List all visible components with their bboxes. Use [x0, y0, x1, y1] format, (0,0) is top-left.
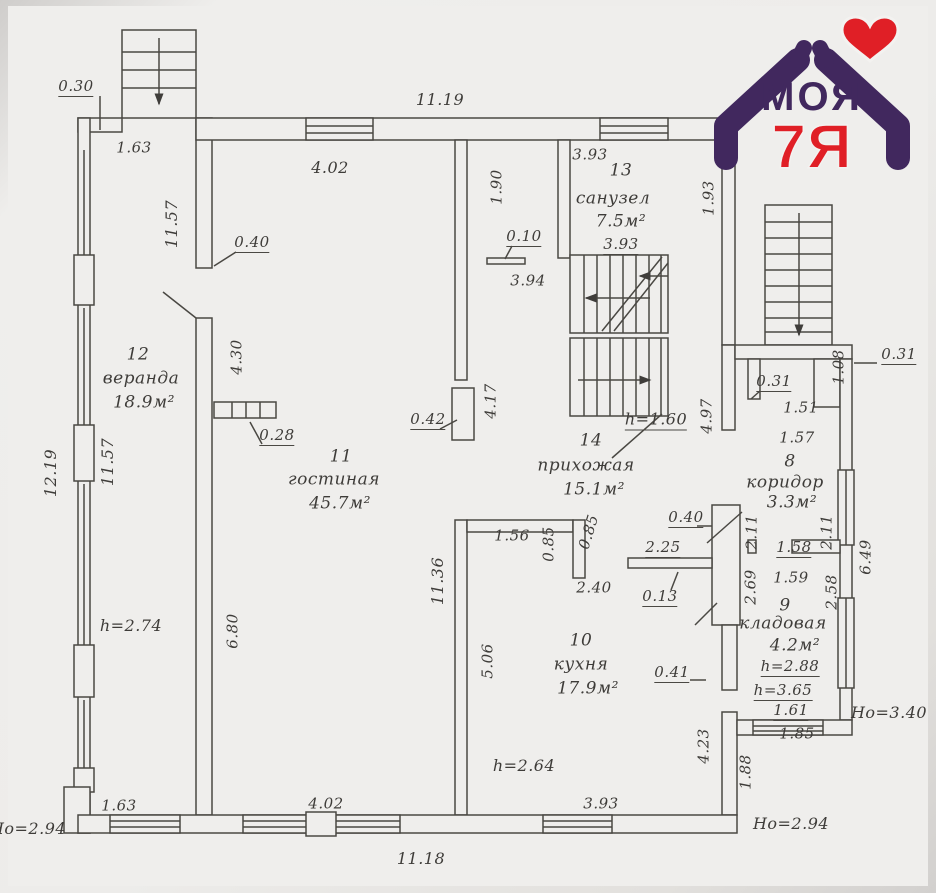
logo-brand: 7Я [771, 113, 852, 182]
dim-ho-3-40: Но=3.40 [851, 705, 927, 721]
dim-h-3-65: h=3.65 [754, 683, 813, 701]
room-number-storage: 9 [779, 598, 790, 615]
room-name-kitchen: кухня [554, 657, 609, 674]
room-number-veranda: 12 [127, 347, 150, 364]
dim-h-2-64: h=2.64 [493, 758, 555, 774]
dim-4-02-top: 4.02 [311, 160, 349, 176]
dim-0-40-left: 0.40 [234, 235, 269, 253]
room-area-hall: 15.1м² [563, 482, 625, 499]
dim-0-85-a: 0.85 [542, 526, 557, 561]
dim-0-30: 0.30 [58, 79, 93, 97]
room-area-kitchen: 17.9м² [557, 681, 619, 698]
dim-11-36: 11.36 [430, 557, 446, 605]
dim-ho-2-94-left: Но=2.94 [0, 821, 66, 837]
dim-1-61: 1.61 [773, 703, 808, 721]
dim-1-59: 1.59 [773, 571, 808, 586]
dim-11-57-top: 11.57 [164, 200, 180, 248]
dim-1-08: 1.08 [832, 349, 847, 384]
dim-1-93: 1.93 [702, 180, 717, 215]
dim-4-30: 4.30 [230, 339, 245, 374]
dim-ho-2-94-right: Но=2.94 [753, 816, 829, 832]
dim-3-93-kitchen: 3.93 [583, 797, 618, 812]
dim-1-85: 1.85 [779, 727, 814, 742]
dim-h-2-74: h=2.74 [100, 618, 162, 634]
room-name-bath: санузел [576, 191, 650, 208]
dim-2-11-left: 2.11 [745, 514, 760, 549]
dim-2-25: 2.25 [645, 540, 680, 558]
room-name-veranda: веранда [103, 371, 180, 388]
dim-4-17: 4.17 [484, 383, 499, 418]
dim-4-97: 4.97 [700, 398, 715, 433]
stairs-top-left [122, 30, 196, 118]
room-number-living: 11 [330, 449, 353, 466]
dim-6-80: 6.80 [226, 613, 241, 648]
dim-0-28: 0.28 [259, 428, 294, 446]
dim-1-90: 1.90 [490, 169, 505, 204]
room-area-bath: 7.5м² [596, 214, 646, 231]
bottom-wall [78, 812, 737, 836]
dim-11-18: 11.18 [397, 851, 445, 867]
dim-0-41: 0.41 [654, 665, 689, 683]
room-number-corridor: 8 [784, 454, 795, 471]
dim-0-13: 0.13 [642, 589, 677, 607]
dim-0-31-left: 0.31 [756, 374, 791, 392]
logo-fist-icon [798, 48, 826, 60]
dim-1-58: 1.58 [776, 540, 811, 558]
room-area-corridor: 3.3м² [767, 495, 817, 512]
dim-1-56: 1.56 [494, 529, 529, 544]
room-name-corridor: коридор [746, 475, 824, 492]
dim-3-93-top: 3.93 [572, 148, 607, 163]
room-area-storage: 4.2м² [770, 638, 820, 655]
agency-logo: МОЯ 7Я [692, 6, 932, 184]
dim-0-31-right: 0.31 [881, 347, 916, 365]
room-name-hall: прихожая [537, 458, 634, 475]
room-number-bath: 13 [610, 163, 633, 180]
room-name-living: гостиная [288, 472, 380, 489]
dim-h-2-88: h=2.88 [761, 659, 820, 677]
dim-6-49: 6.49 [859, 539, 874, 574]
dim-3-93-bath: 3.93 [603, 237, 638, 255]
dim-2-40: 2.40 [576, 581, 611, 596]
dim-11-19: 11.19 [416, 92, 464, 108]
dim-2-11-right: 2.11 [820, 514, 835, 549]
dim-11-57-mid: 11.57 [100, 438, 116, 486]
room-area-veranda: 18.9м² [113, 395, 175, 412]
dim-0-40-right: 0.40 [668, 510, 703, 528]
dim-2-69: 2.69 [744, 569, 759, 604]
dim-1-63-bottom: 1.63 [101, 799, 136, 814]
room-name-storage: кладовая [739, 616, 826, 633]
dim-1-88: 1.88 [739, 754, 754, 789]
dim-0-10: 0.10 [506, 229, 541, 247]
room-number-kitchen: 10 [570, 633, 593, 650]
dim-12-19: 12.19 [43, 449, 59, 497]
dim-3-94: 3.94 [510, 274, 545, 289]
dim-2-58: 2.58 [825, 574, 840, 609]
room-number-hall: 14 [580, 433, 603, 450]
stairs-top-right [765, 205, 832, 345]
dim-4-23: 4.23 [697, 728, 712, 763]
dim-h-1-60: h=1.60 [625, 412, 687, 431]
dim-1-57: 1.57 [779, 431, 814, 446]
dim-1-63-top: 1.63 [116, 141, 151, 156]
dim-4-02-bottom: 4.02 [308, 797, 343, 812]
logo-heart-icon [842, 17, 898, 61]
dim-5-06: 5.06 [481, 643, 496, 678]
top-wall [196, 118, 735, 140]
room-area-living: 45.7м² [309, 496, 371, 513]
dim-1-51: 1.51 [783, 401, 818, 416]
floorplan-scan: 12 веранда 18.9м² 11 гостиная 45.7м² 10 … [0, 0, 936, 893]
dim-0-42: 0.42 [410, 412, 445, 430]
